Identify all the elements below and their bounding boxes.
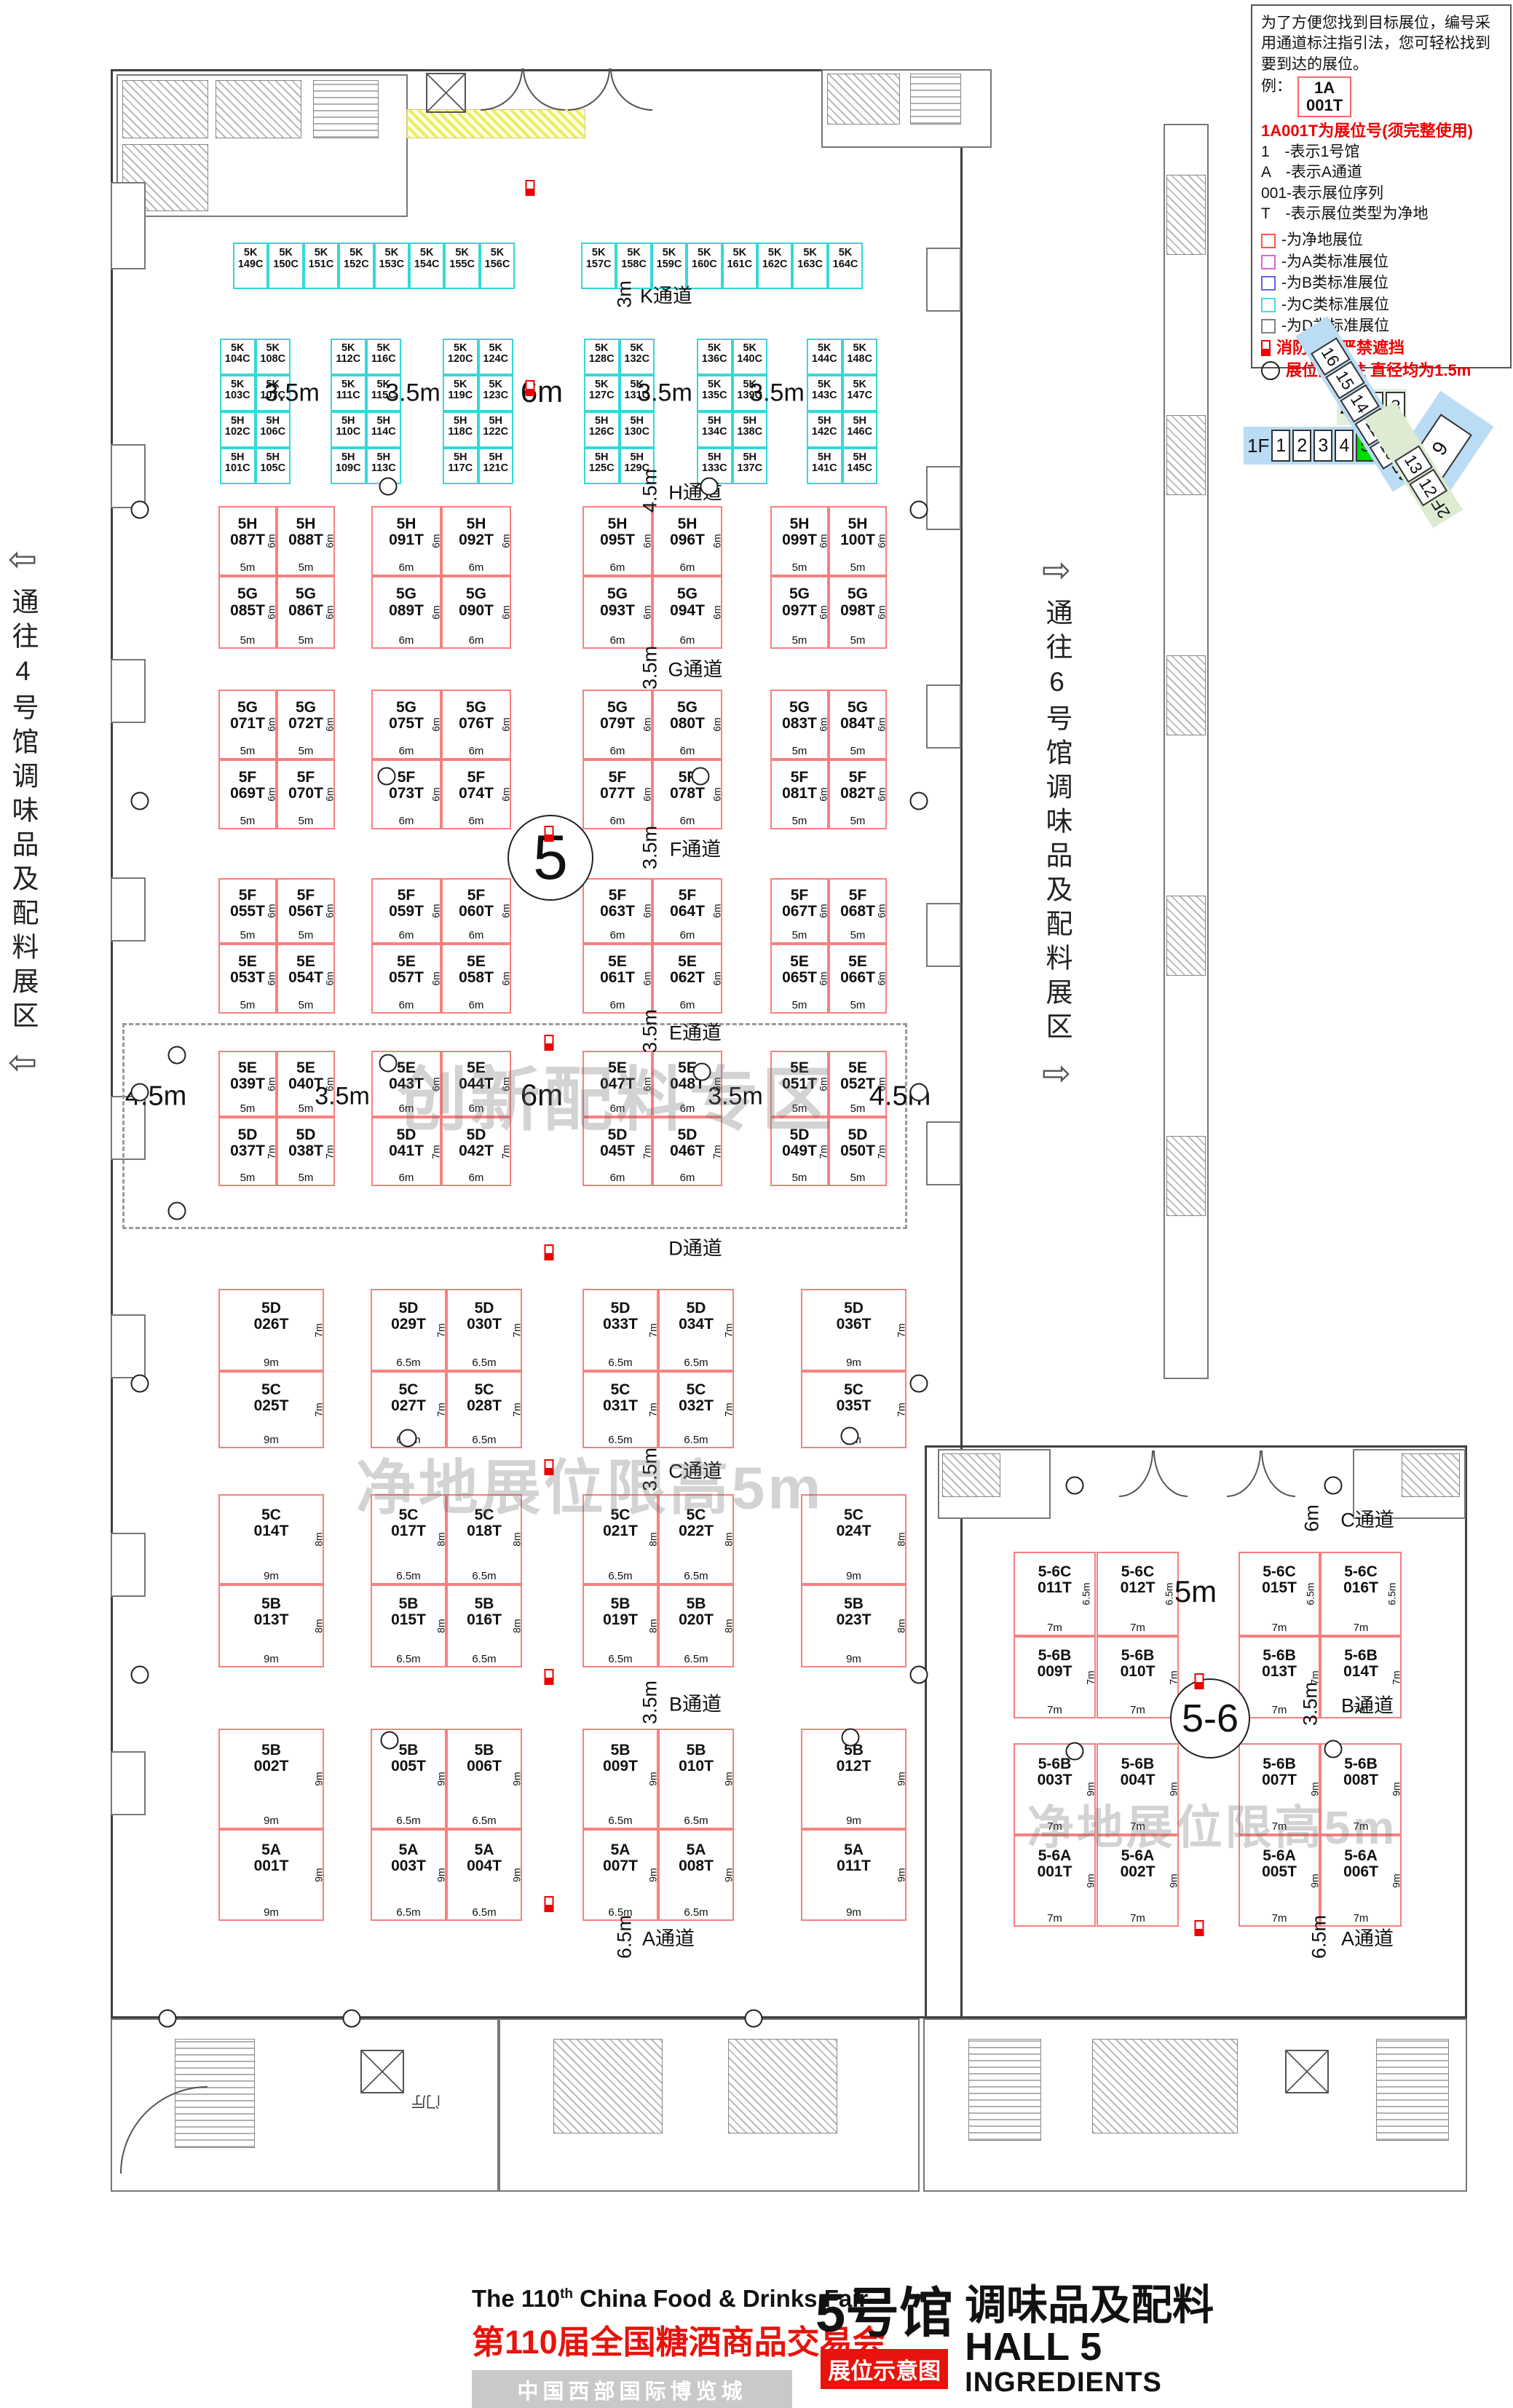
pillar-icon — [1324, 1477, 1343, 1495]
booth-5D-050T: 5D050T5m7m — [829, 1117, 887, 1186]
aisle-dim-G通道: 3.5m — [639, 646, 662, 690]
booth-5D-037T: 5D037T5m7m — [218, 1117, 277, 1186]
booth-5H-117C: 5H117C — [443, 448, 478, 484]
booth-code: 5H105C — [257, 452, 290, 474]
booth-depth-label: 7m — [435, 1323, 446, 1337]
booth-width-label: 6m — [654, 999, 721, 1011]
booth-5H-091T: 5H091T6m6m — [371, 506, 441, 576]
booth-code: 5H113C — [368, 452, 400, 474]
booth-code: 5B009T — [584, 1742, 657, 1775]
booth-width-label: 6.5m — [660, 1815, 732, 1827]
booth-5B-013T: 5B013T9m8m — [218, 1584, 324, 1667]
booth-code: 5H122C — [480, 416, 513, 438]
booth-code: 5K163C — [794, 248, 826, 269]
booth-width-label: 5m — [772, 634, 827, 647]
booth-width-label: 6m — [584, 634, 651, 647]
wall-room — [926, 903, 961, 967]
booth-code: 5K154C — [411, 248, 443, 269]
pillar-icon — [378, 767, 396, 786]
booth-5H-109C: 5H109C — [331, 448, 366, 484]
pillar-icon — [168, 1046, 186, 1065]
corridor-room — [1166, 415, 1206, 495]
watermark: 净地展位限高5m — [1027, 1791, 1398, 1858]
booth-code: 5B019T — [584, 1596, 657, 1628]
fire-well-icon — [545, 1035, 554, 1051]
fire-well-icon — [1261, 340, 1271, 356]
booth-depth-label: 6m — [641, 717, 652, 731]
booth-width-label: 6m — [654, 634, 721, 647]
booth-width-label: 9m — [802, 1653, 905, 1665]
restroom — [216, 80, 301, 138]
booth-5F-055T: 5F055T5m6m — [218, 878, 277, 944]
booth-width-label: 6m — [443, 1172, 510, 1184]
fire-well-icon — [1195, 1920, 1204, 1936]
booth-5K-112C: 5K112C — [331, 339, 366, 375]
booth-width-label: 5m — [278, 929, 333, 942]
booth-5H-099T: 5H099T5m6m — [770, 506, 829, 576]
booth-width-label: 6m — [654, 745, 721, 757]
aisle-label-D通道: D通道 — [668, 1233, 722, 1261]
pillar-icon — [131, 1375, 149, 1393]
booth-5H-101C: 5H101C — [220, 448, 256, 484]
booth-5H-110C: 5H110C — [331, 411, 366, 448]
booth-5H-118C: 5H118C — [443, 411, 478, 448]
wall-room — [111, 1314, 146, 1378]
booth-depth-label: 9m — [312, 1868, 324, 1882]
booth-5K-120C: 5K120C — [443, 339, 478, 375]
booth-width-label: 6.5m — [660, 1906, 732, 1919]
booth-5H-130C: 5H130C — [620, 411, 655, 448]
booth-code: 5K135C — [698, 379, 731, 401]
booth-5K-161C: 5K161C — [722, 242, 757, 289]
booth-code: 5H117C — [444, 452, 477, 474]
booth-depth-label: 8m — [722, 1619, 734, 1633]
booth-width-label: 5m — [772, 929, 827, 942]
booth-depth-label: 6m — [817, 904, 829, 917]
booth-width-label: 5m — [278, 999, 333, 1011]
booth-width-label: 9m — [220, 1653, 323, 1665]
booth-5E-062T: 5E062T6m6m — [652, 944, 722, 1014]
corridor-room — [1166, 1136, 1206, 1216]
booth-5E-057T: 5E057T6m6m — [371, 944, 441, 1014]
booth-width-label: 6m — [654, 1172, 721, 1184]
booth-width-label: 6.5m — [584, 1653, 657, 1665]
dim-label: 3.5m — [264, 379, 320, 408]
booth-depth-label: 7m — [1390, 1670, 1402, 1684]
booth-code: 5B006T — [448, 1742, 521, 1775]
booth-width-label: 6m — [654, 815, 721, 827]
venue-name: 中国西部国际博览城 — [472, 2370, 792, 2408]
room-label: 门厅 — [411, 2093, 441, 2114]
booth-code: 5C032T — [660, 1382, 732, 1414]
pillar-icon — [1066, 1477, 1084, 1495]
booth-5H-146C: 5H146C — [842, 411, 878, 448]
booth-depth-label: 6m — [875, 717, 887, 731]
booth-code: 5-6B010T — [1098, 1648, 1177, 1680]
booth-width-label: 7m — [1015, 1912, 1094, 1925]
wall-room — [926, 248, 961, 312]
booth-5K-116C: 5K116C — [366, 339, 402, 375]
booth-code: 5H145C — [844, 452, 877, 474]
booth-width-label: 6.5m — [448, 1906, 521, 1919]
aisle-label-G通道: G通道 — [668, 654, 722, 682]
booth-code: 5-6B008T — [1322, 1756, 1400, 1788]
booth-code: 5B020T — [660, 1596, 732, 1628]
aisle-dim-C通道: 6m — [1301, 1504, 1324, 1532]
booth-width-label: 6.5m — [372, 1570, 445, 1582]
wing-corner-room — [942, 1453, 1000, 1497]
booth-5G-093T: 5G093T6m6m — [582, 576, 652, 649]
aisle-dim-K通道: 3m — [614, 280, 636, 308]
booth-5F-077T: 5F077T6m6m — [582, 759, 652, 829]
booth-code: 5K160C — [688, 248, 720, 269]
legend-example-label: 例： — [1261, 76, 1292, 97]
booth-width-label: 5m — [830, 929, 885, 942]
corridor-room — [1166, 175, 1206, 255]
booth-5F-068T: 5F068T5m6m — [829, 878, 887, 944]
booth-code: 5-6B003T — [1015, 1756, 1094, 1788]
booth-width-label: 9m — [220, 1357, 323, 1369]
booth-5K-149C: 5K149C — [233, 242, 268, 289]
booth-depth-label: 8m — [312, 1532, 324, 1546]
booth-5F-064T: 5F064T6m6m — [652, 878, 722, 944]
fire-well-icon — [545, 826, 554, 842]
booth-5D-033T: 5D033T6.5m7m — [582, 1289, 658, 1371]
booth-5F-063T: 5F063T6m6m — [582, 878, 652, 944]
booth-width-label: 5m — [830, 1172, 885, 1184]
booth-depth-label: 6m — [430, 787, 441, 801]
booth-depth-label: 6m — [430, 717, 441, 731]
booth-width-label: 9m — [220, 1570, 323, 1582]
booth-code: 5K157C — [582, 248, 615, 269]
booth-code: 5H137C — [734, 452, 767, 474]
legend-example-hall: 1A — [1306, 79, 1343, 97]
booth-width-label: 6m — [373, 561, 440, 574]
booth-depth-label: 6m — [499, 904, 511, 917]
booth-5F-060T: 5F060T6m6m — [441, 878, 511, 944]
booth-depth-label: 6m — [430, 534, 441, 548]
booth-5C-031T: 5C031T6.5m7m — [582, 1371, 658, 1448]
wall-room — [926, 1121, 961, 1185]
booth-width-label: 7m — [1240, 1912, 1319, 1925]
restroom — [122, 80, 208, 138]
booth-width-label: 5m — [772, 1172, 827, 1184]
watermark: 净地展位限高5m — [356, 1440, 824, 1526]
booth-code: 5K111C — [332, 379, 365, 401]
dim-label: 5m — [1174, 1574, 1217, 1609]
booth-depth-label: 6m — [875, 534, 887, 548]
left-arrow-icon: ⇦ — [8, 1046, 37, 1081]
booth-depth-label: 6m — [641, 605, 652, 619]
booth-width-label: 5m — [278, 634, 333, 647]
dim-label: 3.5m — [315, 1083, 370, 1111]
aisle-label-E通道: E通道 — [669, 1017, 722, 1046]
stairs — [910, 74, 961, 125]
pillar-icon — [379, 478, 398, 496]
booth-code: 5H109C — [332, 452, 365, 474]
booth-width-label: 6m — [443, 999, 510, 1011]
booth-width-label: 6.5m — [584, 1357, 657, 1369]
wall-room — [111, 1533, 146, 1597]
booth-5E-054T: 5E054T5m6m — [277, 944, 335, 1014]
booth-5H-096T: 5H096T6m6m — [652, 506, 722, 576]
legend-key-swatch — [1261, 276, 1276, 291]
booth-depth-label: 7m — [722, 1323, 734, 1337]
booth-depth-label: 7m — [722, 1402, 734, 1416]
booth-5-6B-009T: 5-6B009T7m7m — [1014, 1636, 1096, 1718]
booth-code: 5K164C — [829, 248, 861, 269]
booth-5F-069T: 5F069T5m6m — [218, 759, 277, 829]
booth-5H-141C: 5H141C — [807, 448, 842, 484]
stairs — [1376, 2039, 1449, 2141]
legend-line: T -表示展位类型为净地 — [1261, 204, 1501, 224]
minimap-hall-2: 2 — [1292, 430, 1311, 462]
booth-width-label: 7m — [1098, 1622, 1177, 1634]
right-arrow-icon: ⇨ — [1042, 553, 1071, 588]
booth-depth-label: 8m — [647, 1619, 658, 1633]
legend-key-label: -为A类标准展位 — [1281, 252, 1388, 272]
booth-code: 5H141C — [808, 452, 841, 474]
booth-depth-label: 9m — [510, 1868, 522, 1882]
booth-code: 5-6B004T — [1098, 1756, 1177, 1788]
booth-code: 5K112C — [332, 343, 365, 365]
pillar-icon — [381, 1732, 399, 1750]
legend-line: 1 -表示1号馆 — [1261, 142, 1501, 162]
booth-code: 5D029T — [372, 1300, 445, 1333]
booth-5H-102C: 5H102C — [220, 411, 256, 448]
booth-depth-label: 9m — [1390, 1874, 1402, 1887]
booth-code: 5K120C — [444, 343, 477, 365]
booth-5G-085T: 5G085T5m6m — [218, 576, 277, 649]
booth-width-label: 9m — [220, 1906, 323, 1919]
booth-5A-008T: 5A008T6.5m9m — [658, 1829, 734, 1921]
booth-depth-label: 7m — [817, 1145, 829, 1158]
booth-depth-label: 6m — [641, 904, 652, 917]
hall5-floor-plan: 为了方便您找到目标展位，编号采用通道标注指引法，您可轻松找到要到达的展位。 例：… — [0, 0, 1513, 2408]
booth-code: 5K144C — [808, 343, 841, 365]
pillar-icon — [131, 1083, 149, 1102]
booth-width-label: 6.5m — [448, 1815, 521, 1827]
booth-5H-106C: 5H106C — [256, 411, 291, 448]
booth-5A-001T: 5A001T9m9m — [218, 1829, 324, 1921]
booth-5B-009T: 5B009T6.5m9m — [582, 1729, 658, 1829]
booth-5H-114C: 5H114C — [366, 411, 402, 448]
aisle-label-C通道: C通道 — [1340, 1504, 1394, 1533]
booth-code: 5K147C — [844, 379, 877, 401]
booth-width-label: 9m — [802, 1357, 905, 1369]
pillar-icon — [910, 1666, 928, 1684]
booth-width-label: 9m — [220, 1434, 323, 1446]
booth-code: 5K108C — [257, 343, 290, 365]
booth-depth-label: 6m — [711, 717, 722, 731]
booth-code: 5K151C — [305, 248, 337, 269]
booth-5G-080T: 5G080T6m6m — [652, 690, 722, 759]
booth-depth-label: 6.5m — [1304, 1582, 1316, 1605]
corridor-room — [1166, 655, 1206, 735]
aisle-label-B通道: B通道 — [669, 1689, 722, 1717]
booth-code: 5K143C — [808, 379, 841, 401]
pillar-icon — [343, 2010, 361, 2028]
booth-depth-label: 6m — [265, 904, 277, 917]
booth-5K-148C: 5K148C — [842, 339, 878, 375]
booth-width-label: 9m — [802, 1570, 905, 1582]
booth-code: 5K132C — [621, 343, 654, 365]
booth-code: 5H133C — [698, 452, 731, 474]
entrance-mat — [406, 109, 585, 138]
pillar-icon — [131, 501, 149, 519]
booth-depth-label: 6m — [499, 971, 511, 985]
restroom — [827, 74, 900, 125]
booth-code: 5K103C — [221, 379, 254, 401]
booth-5G-090T: 5G090T6m6m — [441, 576, 511, 649]
booth-5K-123C: 5K123C — [478, 375, 514, 411]
booth-depth-label: 7m — [312, 1402, 324, 1416]
booth-code: 5C035T — [802, 1382, 905, 1414]
booth-code: 5H114C — [368, 416, 400, 438]
booth-depth-label: 6m — [265, 971, 277, 985]
booth-5E-066T: 5E066T5m6m — [829, 944, 887, 1014]
aisle-dim-B通道: 3.5m — [639, 1681, 662, 1724]
booth-width-label: 5m — [830, 745, 885, 757]
booth-5K-147C: 5K147C — [842, 375, 878, 411]
stairs — [968, 2039, 1041, 2141]
booth-5D-026T: 5D026T9m7m — [218, 1289, 324, 1371]
booth-code: 5K128C — [585, 343, 618, 365]
booth-depth-label: 6m — [641, 971, 652, 985]
booth-5K-157C: 5K157C — [581, 242, 616, 289]
booth-code: 5K162C — [759, 248, 791, 269]
booth-width-label: 5m — [220, 999, 275, 1011]
booth-width-label: 6.5m — [372, 1906, 445, 1919]
booth-5H-138C: 5H138C — [732, 411, 768, 448]
booth-5E-061T: 5E061T6m6m — [582, 944, 652, 1014]
booth-5H-088T: 5H088T5m6m — [277, 506, 335, 576]
booth-code: 5K119C — [444, 379, 477, 401]
hall-name-cn: 5号馆 — [815, 2285, 953, 2342]
booth-depth-label: 6m — [430, 971, 441, 985]
booth-depth-label: 8m — [510, 1619, 522, 1633]
booth-5F-056T: 5F056T5m6m — [277, 878, 335, 944]
booth-width-label: 6m — [443, 634, 510, 647]
booth-code: 5D026T — [220, 1300, 323, 1333]
booth-width-label: 6.5m — [660, 1357, 732, 1369]
booth-code: 5K140C — [734, 343, 767, 365]
booth-5C-028T: 5C028T6.5m7m — [446, 1371, 522, 1448]
booth-5D-034T: 5D034T6.5m7m — [658, 1289, 734, 1371]
booth-width-label: 6.5m — [448, 1653, 521, 1665]
booth-5E-053T: 5E053T5m6m — [218, 944, 277, 1014]
legend-key-row: -为B类标准展位 — [1261, 273, 1501, 293]
booth-5K-151C: 5K151C — [304, 242, 339, 289]
booth-5B-020T: 5B020T6.5m8m — [658, 1584, 734, 1667]
minimap-floor1-label: 1F — [1247, 435, 1269, 457]
booth-depth-label: 6m — [265, 1077, 277, 1091]
booth-5H-100T: 5H100T5m6m — [829, 506, 887, 576]
pillar-icon — [131, 792, 149, 810]
booth-5A-004T: 5A004T6.5m9m — [446, 1829, 522, 1921]
booth-depth-label: 6m — [711, 534, 722, 548]
pillar-icon — [131, 1666, 149, 1684]
booth-5G-079T: 5G079T6m6m — [582, 690, 652, 759]
booth-width-label: 5m — [220, 929, 275, 942]
booth-5H-125C: 5H125C — [584, 448, 620, 484]
booth-depth-label: 6m — [323, 904, 335, 917]
booth-depth-label: 7m — [510, 1402, 522, 1416]
booth-width-label: 6m — [373, 999, 440, 1011]
booth-depth-label: 6.5m — [1386, 1582, 1397, 1605]
booth-depth-label: 6m — [875, 787, 887, 801]
booth-5-6C-015T: 5-6C015T7m6.5m — [1239, 1552, 1320, 1636]
pillar-icon — [910, 501, 928, 519]
booth-depth-label: 6m — [875, 605, 887, 619]
booth-width-label: 5m — [220, 1102, 275, 1115]
booth-5H-105C: 5H105C — [256, 448, 291, 484]
booth-5K-143C: 5K143C — [807, 375, 842, 411]
pillar-icon — [841, 1427, 859, 1445]
booth-width-label: 6.5m — [660, 1653, 732, 1665]
booth-depth-label: 8m — [895, 1532, 906, 1546]
legend-panel: 为了方便您找到目标展位，编号采用通道标注指引法，您可轻松找到要到达的展位。 例：… — [1251, 4, 1512, 368]
booth-code: 5H146C — [844, 416, 877, 438]
booth-width-label: 5m — [772, 815, 827, 827]
booth-5G-071T: 5G071T5m6m — [218, 690, 277, 759]
booth-5-6C-012T: 5-6C012T7m6.5m — [1097, 1552, 1179, 1636]
booth-depth-label: 6m — [711, 787, 722, 801]
booth-code: 5B016T — [448, 1596, 521, 1628]
pillar-icon — [842, 1729, 860, 1747]
booth-code: 5A003T — [372, 1842, 445, 1874]
booth-5E-039T: 5E039T5m6m — [218, 1051, 277, 1117]
booth-5K-154C: 5K154C — [409, 242, 444, 289]
pillar-icon — [1324, 1740, 1343, 1758]
booth-depth-label: 8m — [722, 1532, 734, 1546]
corridor-note-left: ⇦ 通往4号馆调味品及配料展区 ⇦ — [3, 542, 42, 1081]
booth-5D-036T: 5D036T9m7m — [801, 1289, 906, 1371]
booth-depth-label: 6m — [711, 904, 722, 917]
booth-width-label: 7m — [1322, 1622, 1400, 1634]
booth-5C-025T: 5C025T9m7m — [218, 1371, 324, 1448]
booth-depth-label: 6m — [430, 605, 441, 619]
booth-5D-030T: 5D030T6.5m7m — [446, 1289, 522, 1371]
booth-width-label: 6.5m — [660, 1570, 732, 1582]
booth-depth-label: 7m — [265, 1145, 277, 1158]
booth-code: 5C027T — [372, 1382, 445, 1414]
booth-5K-124C: 5K124C — [478, 339, 514, 375]
minimap-hall-4: 4 — [1335, 430, 1354, 462]
booth-code: 5D033T — [584, 1300, 657, 1333]
aisle-dim-A通道: 6.5m — [1308, 1915, 1331, 1959]
booth-code: 5A008T — [660, 1842, 732, 1874]
fire-well-icon — [1195, 1673, 1204, 1689]
booth-width-label: 6m — [443, 815, 510, 827]
pillar-icon — [692, 767, 710, 786]
booth-5E-058T: 5E058T6m6m — [441, 944, 511, 1014]
booth-code: 5B002T — [220, 1742, 323, 1775]
booth-code: 5K153C — [376, 248, 408, 269]
booth-depth-label: 6m — [323, 787, 335, 801]
booth-depth-label: 7m — [647, 1402, 658, 1416]
booth-depth-label: 8m — [435, 1619, 446, 1633]
fair-title-cn: 第110届全国糖酒商品交易会 — [472, 2316, 792, 2363]
booth-width-label: 5m — [278, 815, 333, 827]
booth-depth-label: 9m — [435, 1868, 446, 1882]
booth-code: 5K148C — [844, 343, 877, 365]
booth-5B-002T: 5B002T9m9m — [218, 1729, 324, 1829]
wall-room — [111, 1751, 146, 1815]
booth-code: 5K159C — [653, 248, 685, 269]
booth-5K-108C: 5K108C — [256, 339, 291, 375]
booth-width-label: 6m — [584, 561, 651, 574]
